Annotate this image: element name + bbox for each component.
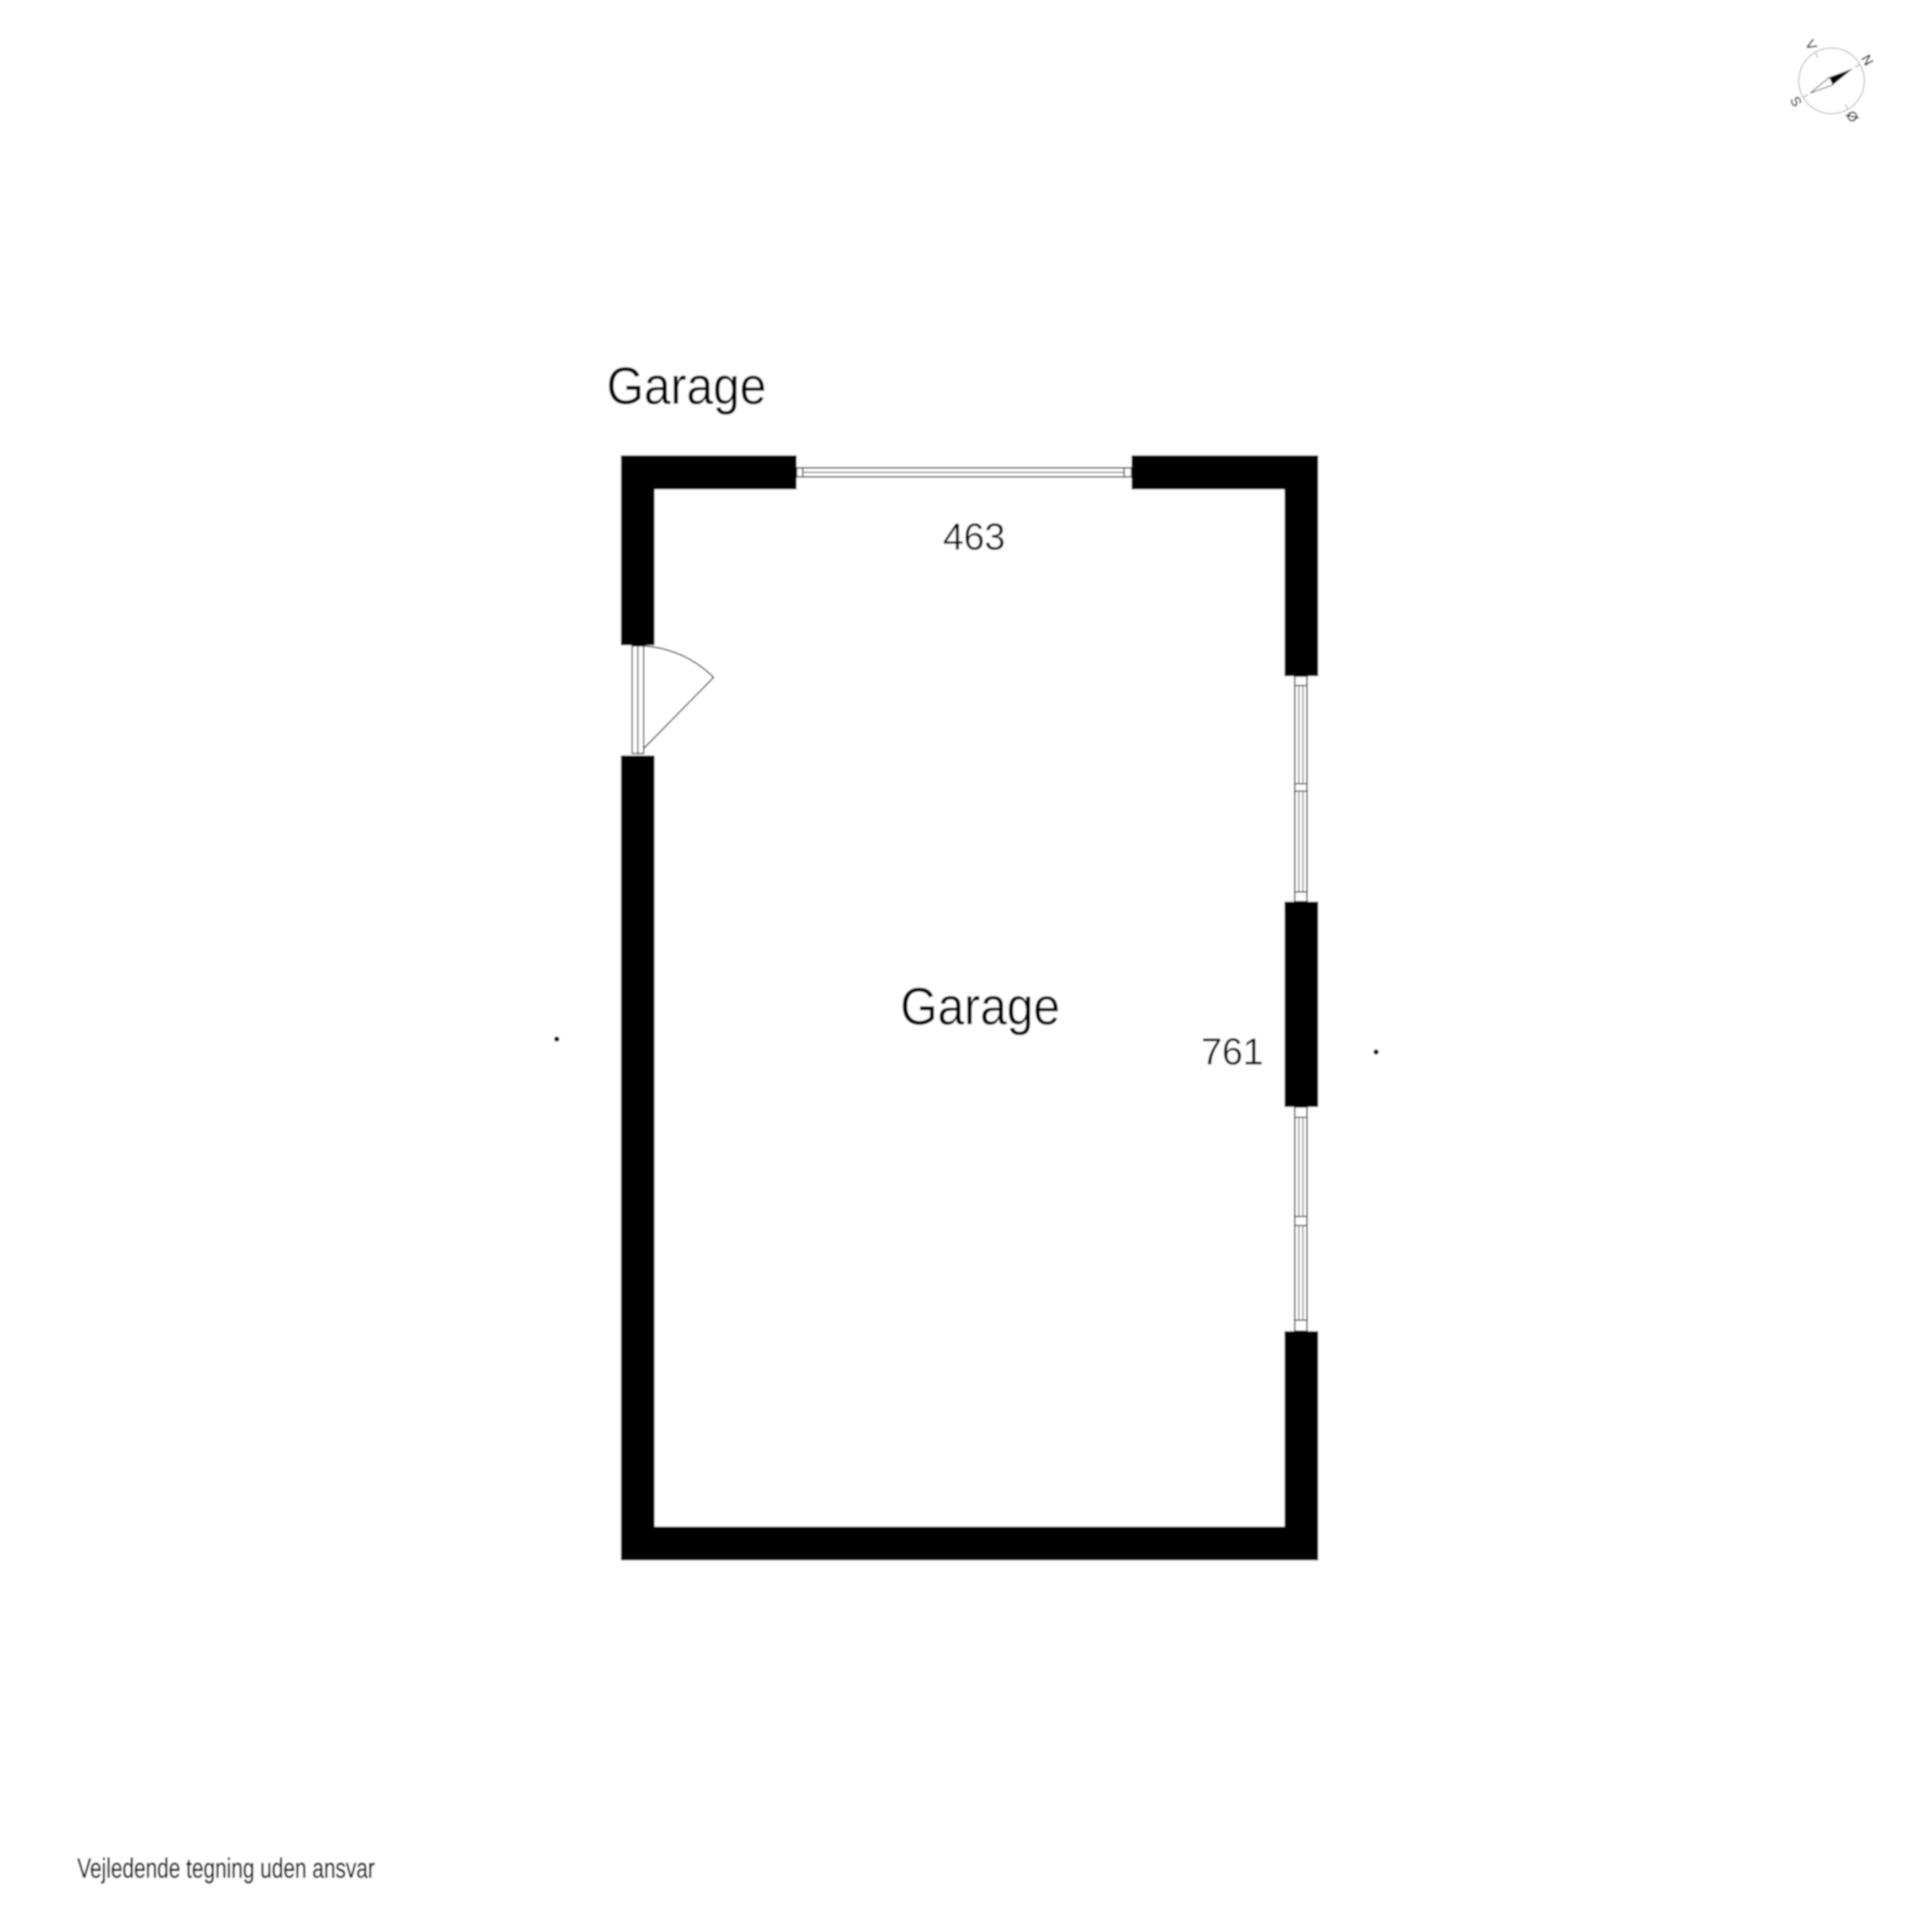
- svg-text:463: 463: [943, 516, 1005, 558]
- svg-text:Garage: Garage: [607, 357, 766, 415]
- svg-text:761: 761: [1201, 1031, 1264, 1073]
- svg-text:Vejledende tegning uden ansvar: Vejledende tegning uden ansvar: [77, 1853, 375, 1884]
- svg-text:Garage: Garage: [900, 978, 1060, 1036]
